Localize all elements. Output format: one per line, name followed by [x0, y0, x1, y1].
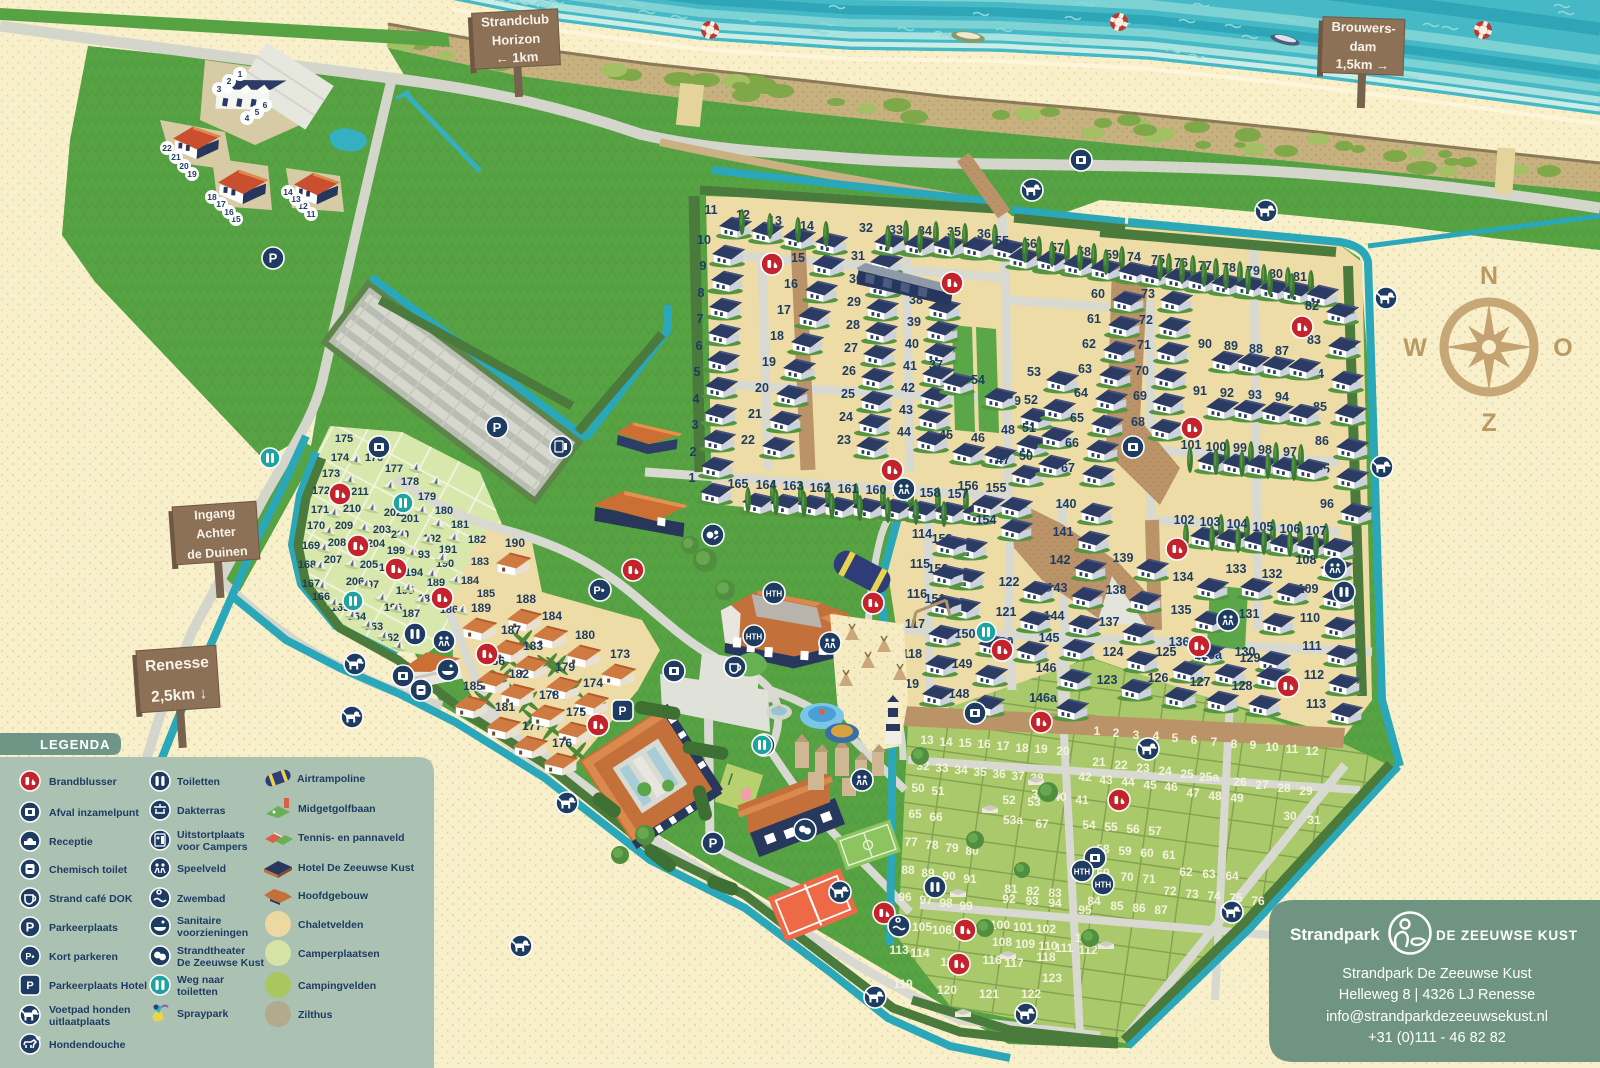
svg-text:43: 43	[1099, 773, 1113, 787]
svg-text:99: 99	[1233, 441, 1247, 455]
svg-text:14: 14	[939, 735, 953, 749]
svg-text:82: 82	[1026, 884, 1040, 898]
svg-text:36: 36	[977, 227, 991, 241]
svg-text:71: 71	[1137, 338, 1151, 352]
svg-text:Zilthus: Zilthus	[298, 1009, 333, 1021]
svg-text:5: 5	[1172, 731, 1179, 745]
svg-text:Horizon: Horizon	[491, 31, 540, 49]
svg-text:P: P	[269, 251, 278, 266]
svg-text:21: 21	[171, 152, 181, 162]
svg-text:Parkeerplaats: Parkeerplaats	[49, 922, 118, 934]
svg-text:74: 74	[1207, 889, 1221, 903]
svg-text:53: 53	[1027, 365, 1041, 379]
svg-text:122: 122	[999, 575, 1020, 589]
svg-text:112: 112	[1304, 668, 1324, 682]
svg-text:114: 114	[910, 946, 930, 960]
svg-text:135: 135	[1171, 603, 1192, 617]
svg-text:29: 29	[847, 295, 861, 309]
svg-text:207: 207	[324, 554, 342, 566]
svg-text:48: 48	[1001, 423, 1015, 437]
svg-text:22: 22	[741, 433, 755, 447]
svg-text:4: 4	[693, 392, 700, 406]
svg-text:86: 86	[1132, 901, 1146, 915]
svg-text:+31 (0)111 - 46 82 82: +31 (0)111 - 46 82 82	[1368, 1030, 1506, 1046]
svg-text:57: 57	[1148, 824, 1162, 838]
svg-text:182: 182	[509, 667, 529, 681]
svg-text:Camperplaatsen: Camperplaatsen	[298, 948, 380, 960]
svg-text:205: 205	[360, 559, 378, 571]
svg-text:3: 3	[217, 84, 222, 94]
svg-text:108: 108	[992, 935, 1012, 949]
svg-text:123: 123	[1097, 673, 1118, 687]
svg-text:190: 190	[505, 536, 525, 550]
svg-text:25: 25	[841, 387, 855, 401]
svg-text:41: 41	[1075, 793, 1089, 807]
svg-text:154: 154	[976, 513, 997, 527]
svg-text:40: 40	[905, 337, 919, 351]
svg-text:55: 55	[995, 234, 1009, 248]
svg-text:18: 18	[770, 329, 784, 343]
svg-text:70: 70	[1135, 364, 1149, 378]
svg-text:5: 5	[255, 107, 260, 117]
svg-text:65: 65	[908, 807, 922, 821]
svg-text:19: 19	[762, 355, 776, 369]
svg-text:36: 36	[992, 767, 1006, 781]
svg-text:187: 187	[501, 623, 521, 637]
svg-text:166: 166	[312, 591, 330, 603]
svg-text:14: 14	[800, 219, 814, 233]
svg-text:33: 33	[935, 761, 949, 775]
svg-text:173: 173	[610, 647, 630, 661]
svg-text:Helleweg 8 | 4326 LJ Renesse: Helleweg 8 | 4326 LJ Renesse	[1339, 987, 1535, 1003]
svg-text:← 1km: ← 1km	[495, 49, 538, 66]
svg-text:59: 59	[1118, 844, 1132, 858]
svg-text:176: 176	[552, 736, 572, 750]
svg-text:Midgetgolfbaan: Midgetgolfbaan	[298, 803, 376, 815]
svg-text:26: 26	[842, 364, 856, 378]
svg-text:1: 1	[238, 69, 243, 79]
svg-text:110: 110	[1300, 611, 1320, 625]
svg-text:Brandblusser: Brandblusser	[49, 776, 117, 788]
svg-text:178: 178	[401, 476, 419, 488]
svg-text:45: 45	[939, 428, 953, 442]
svg-text:Hoofdgebouw: Hoofdgebouw	[298, 890, 369, 902]
svg-text:LEGENDA: LEGENDA	[40, 737, 111, 752]
svg-text:DE ZEEUWSE KUST: DE ZEEUWSE KUST	[1436, 928, 1578, 943]
svg-text:P: P	[709, 836, 718, 851]
svg-text:94: 94	[1275, 390, 1289, 404]
svg-text:26: 26	[1233, 775, 1247, 789]
svg-text:7: 7	[697, 312, 704, 326]
svg-text:118: 118	[1036, 950, 1056, 964]
svg-text:23: 23	[837, 433, 851, 447]
svg-text:133: 133	[1226, 562, 1247, 576]
svg-text:18: 18	[207, 192, 217, 202]
svg-text:5: 5	[694, 365, 701, 379]
svg-text:64: 64	[1225, 869, 1239, 883]
svg-text:6: 6	[1191, 733, 1198, 747]
svg-text:87: 87	[1275, 344, 1289, 358]
svg-text:61: 61	[1162, 848, 1176, 862]
svg-text:HTH: HTH	[1074, 868, 1091, 877]
svg-text:1: 1	[1094, 724, 1101, 738]
svg-text:87: 87	[1154, 903, 1168, 917]
svg-text:47: 47	[996, 453, 1010, 467]
svg-text:179: 179	[418, 491, 436, 503]
svg-text:info@strandparkdezeeuwsekust.n: info@strandparkdezeeuwsekust.nl	[1326, 1009, 1548, 1025]
svg-text:15: 15	[791, 251, 805, 265]
svg-text:92: 92	[1220, 386, 1234, 400]
svg-text:139: 139	[1113, 551, 1134, 565]
svg-text:20: 20	[179, 161, 189, 171]
svg-text:1,5km →: 1,5km →	[1335, 56, 1389, 73]
svg-text:HTH: HTH	[1095, 881, 1112, 890]
svg-text:44: 44	[897, 425, 911, 439]
svg-text:174: 174	[331, 452, 350, 464]
svg-text:Strandpark De Zeeuwse Kust: Strandpark De Zeeuwse Kust	[1342, 966, 1531, 982]
svg-text:33: 33	[889, 223, 903, 237]
svg-text:77: 77	[904, 835, 918, 849]
svg-text:dam: dam	[1349, 39, 1376, 55]
svg-text:27: 27	[844, 341, 858, 355]
svg-text:16: 16	[784, 277, 798, 291]
svg-text:84: 84	[1087, 894, 1101, 908]
svg-text:15: 15	[958, 736, 972, 750]
svg-text:116: 116	[982, 953, 1002, 967]
svg-text:24: 24	[1158, 764, 1172, 778]
svg-text:P•: P•	[25, 952, 34, 962]
svg-text:175: 175	[335, 433, 353, 445]
svg-text:23: 23	[1136, 761, 1150, 775]
svg-text:109: 109	[1015, 937, 1035, 951]
svg-text:174: 174	[583, 676, 603, 690]
svg-text:101: 101	[1013, 920, 1033, 934]
svg-text:140: 140	[1056, 497, 1077, 511]
svg-text:8: 8	[698, 286, 705, 300]
svg-text:Strand café DOK: Strand café DOK	[49, 893, 133, 905]
svg-text:141: 141	[1053, 525, 1074, 539]
svg-text:29: 29	[1299, 784, 1313, 798]
svg-text:73: 73	[1141, 287, 1155, 301]
svg-text:90: 90	[1198, 337, 1212, 351]
svg-text:62: 62	[1082, 337, 1096, 351]
svg-text:Chaletvelden: Chaletvelden	[298, 919, 363, 931]
svg-text:102: 102	[1036, 922, 1056, 936]
svg-text:1: 1	[689, 471, 696, 485]
svg-text:3: 3	[692, 418, 699, 432]
svg-text:155: 155	[986, 481, 1007, 495]
svg-text:54: 54	[971, 373, 985, 387]
svg-text:32: 32	[859, 221, 873, 235]
svg-text:63: 63	[1202, 867, 1216, 881]
svg-text:66: 66	[929, 810, 943, 824]
svg-text:70: 70	[1120, 870, 1134, 884]
svg-text:Zwembad: Zwembad	[177, 893, 225, 905]
svg-text:116: 116	[907, 587, 927, 601]
svg-text:172: 172	[312, 485, 330, 497]
svg-text:uitlaatplaats: uitlaatplaats	[49, 1016, 110, 1028]
svg-text:9: 9	[700, 259, 707, 273]
svg-text:180: 180	[435, 505, 453, 517]
svg-text:185: 185	[463, 679, 483, 693]
svg-text:52: 52	[1024, 393, 1038, 407]
svg-text:149: 149	[952, 657, 973, 671]
svg-text:Airtrampoline: Airtrampoline	[297, 773, 365, 785]
svg-text:81: 81	[1004, 882, 1018, 896]
svg-text:99: 99	[959, 899, 973, 913]
svg-text:22: 22	[1114, 758, 1128, 772]
svg-text:Parkeerplaats Hotel: Parkeerplaats Hotel	[49, 980, 147, 992]
svg-text:142: 142	[1050, 553, 1071, 567]
svg-text:51: 51	[1022, 421, 1036, 435]
svg-text:124: 124	[1103, 645, 1124, 659]
svg-text:187: 187	[402, 608, 420, 620]
svg-text:7: 7	[1211, 735, 1218, 749]
svg-text:79: 79	[945, 841, 959, 855]
svg-text:114: 114	[912, 527, 932, 541]
svg-text:De Zeeuwse Kust: De Zeeuwse Kust	[177, 957, 264, 969]
svg-text:209: 209	[335, 520, 353, 532]
svg-text:120: 120	[937, 983, 957, 997]
svg-text:81: 81	[1293, 270, 1307, 284]
svg-text:122: 122	[1021, 987, 1041, 1001]
svg-text:HTH: HTH	[746, 633, 763, 642]
svg-text:72: 72	[1163, 884, 1177, 898]
svg-text:46: 46	[1164, 780, 1178, 794]
svg-text:188: 188	[516, 592, 536, 606]
svg-text:Kort parkeren: Kort parkeren	[49, 951, 118, 963]
svg-text:31: 31	[851, 249, 865, 263]
svg-text:85: 85	[1110, 899, 1124, 913]
svg-text:Z: Z	[1481, 409, 1496, 437]
svg-text:175: 175	[566, 705, 586, 719]
svg-text:56: 56	[1126, 822, 1140, 836]
svg-text:21: 21	[748, 407, 762, 421]
svg-text:10: 10	[1265, 740, 1279, 754]
svg-text:48: 48	[1208, 789, 1222, 803]
svg-text:171: 171	[311, 504, 329, 516]
svg-text:60: 60	[1140, 846, 1154, 860]
svg-text:123: 123	[1042, 971, 1062, 985]
svg-text:61: 61	[1087, 312, 1101, 326]
svg-text:Ingang: Ingang	[194, 506, 236, 523]
svg-text:88: 88	[1249, 342, 1263, 356]
svg-text:Hotel De Zeeuwse Kust: Hotel De Zeeuwse Kust	[298, 862, 415, 874]
svg-text:177: 177	[385, 463, 403, 475]
svg-text:67: 67	[1035, 817, 1049, 831]
svg-text:86: 86	[1315, 434, 1329, 448]
svg-text:111: 111	[1055, 941, 1074, 955]
svg-text:88: 88	[901, 863, 915, 877]
svg-text:105: 105	[912, 920, 932, 934]
svg-text:150: 150	[955, 627, 976, 641]
svg-text:74: 74	[1127, 250, 1141, 264]
svg-text:52: 52	[1002, 793, 1016, 807]
svg-text:132: 132	[1262, 567, 1283, 581]
svg-text:6: 6	[263, 100, 268, 110]
svg-text:2: 2	[1113, 726, 1120, 740]
svg-text:20: 20	[755, 381, 769, 395]
svg-text:102: 102	[1174, 513, 1195, 527]
svg-text:22: 22	[162, 143, 172, 153]
svg-text:129: 129	[1240, 651, 1261, 665]
svg-text:69: 69	[1133, 389, 1147, 403]
svg-text:121: 121	[979, 987, 999, 1001]
svg-text:98: 98	[1258, 443, 1272, 457]
svg-text:127: 127	[1190, 675, 1211, 689]
svg-text:13: 13	[920, 733, 934, 747]
svg-text:201: 201	[401, 513, 419, 525]
svg-text:137: 137	[1099, 615, 1120, 629]
svg-text:50: 50	[1019, 449, 1033, 463]
svg-text:20: 20	[1056, 744, 1070, 758]
svg-text:93: 93	[1248, 388, 1262, 402]
svg-text:103: 103	[1200, 515, 1221, 529]
svg-text:Receptie: Receptie	[49, 836, 93, 848]
svg-text:146: 146	[1036, 661, 1057, 675]
svg-text:66: 66	[1065, 436, 1079, 450]
svg-text:11: 11	[704, 203, 717, 217]
svg-text:Speelveld: Speelveld	[177, 863, 226, 875]
svg-text:146a: 146a	[1029, 691, 1058, 705]
svg-text:Afval inzamelpunt: Afval inzamelpunt	[49, 807, 139, 819]
svg-text:73: 73	[1185, 887, 1199, 901]
svg-text:89: 89	[1224, 339, 1238, 353]
svg-text:164: 164	[756, 478, 777, 492]
svg-text:162: 162	[810, 481, 831, 495]
svg-text:121: 121	[996, 605, 1017, 619]
svg-text:181: 181	[451, 519, 469, 531]
svg-text:25: 25	[1180, 767, 1194, 781]
svg-text:47: 47	[1186, 786, 1200, 800]
svg-text:113: 113	[889, 943, 909, 957]
svg-text:HTH: HTH	[766, 590, 783, 599]
svg-text:Weg naar: Weg naar	[177, 974, 224, 986]
svg-text:6: 6	[696, 339, 703, 353]
svg-text:24: 24	[839, 410, 853, 424]
svg-text:Hondendouche: Hondendouche	[49, 1039, 126, 1051]
svg-text:161: 161	[838, 482, 859, 496]
svg-text:208: 208	[328, 537, 346, 549]
svg-text:28: 28	[1277, 781, 1291, 795]
svg-text:34: 34	[954, 763, 968, 777]
svg-text:184: 184	[542, 609, 562, 623]
svg-text:P: P	[26, 920, 35, 935]
svg-text:16: 16	[977, 737, 991, 751]
svg-text:P: P	[493, 420, 502, 435]
svg-text:128: 128	[1232, 679, 1253, 693]
svg-text:Dakterras: Dakterras	[177, 805, 226, 817]
svg-text:83: 83	[1048, 886, 1062, 900]
svg-text:181: 181	[495, 700, 515, 714]
svg-text:134: 134	[1173, 570, 1194, 584]
svg-text:165: 165	[728, 477, 749, 491]
svg-text:72: 72	[1139, 313, 1153, 327]
svg-text:39: 39	[907, 315, 921, 329]
svg-text:179: 179	[555, 660, 575, 674]
svg-text:51: 51	[931, 784, 945, 798]
svg-text:145: 145	[1039, 631, 1060, 645]
svg-text:P•: P•	[593, 585, 604, 597]
svg-text:67: 67	[1061, 461, 1075, 475]
svg-text:204: 204	[367, 538, 386, 550]
svg-text:64: 64	[1074, 386, 1088, 400]
svg-text:35: 35	[973, 765, 987, 779]
svg-text:119: 119	[893, 977, 913, 991]
svg-text:17: 17	[777, 303, 791, 317]
svg-text:55: 55	[1104, 820, 1118, 834]
svg-text:91: 91	[1193, 384, 1207, 398]
svg-text:106: 106	[932, 923, 952, 937]
svg-text:46: 46	[971, 431, 985, 445]
svg-text:71: 71	[1142, 872, 1156, 886]
svg-text:50: 50	[911, 781, 925, 795]
svg-text:76: 76	[1251, 894, 1265, 908]
svg-text:Spraypark: Spraypark	[177, 1008, 229, 1020]
svg-text:49: 49	[1230, 791, 1244, 805]
svg-text:8: 8	[1231, 737, 1238, 751]
svg-text:108: 108	[1296, 553, 1317, 567]
svg-text:178: 178	[539, 688, 559, 702]
svg-text:98: 98	[939, 896, 953, 910]
svg-text:170: 170	[307, 520, 325, 532]
svg-text:42: 42	[901, 381, 915, 395]
svg-text:2: 2	[227, 76, 232, 86]
svg-text:14: 14	[283, 187, 293, 197]
svg-text:9: 9	[1250, 738, 1257, 752]
svg-text:189: 189	[471, 601, 491, 615]
svg-text:199: 199	[387, 545, 405, 557]
svg-text:210: 210	[343, 503, 361, 515]
svg-text:Toiletten: Toiletten	[177, 776, 220, 788]
svg-text:68: 68	[1131, 415, 1145, 429]
svg-text:54: 54	[1082, 818, 1096, 832]
svg-text:12: 12	[1305, 744, 1319, 758]
svg-text:60: 60	[1091, 287, 1105, 301]
svg-text:111: 111	[1302, 639, 1322, 653]
svg-text:27: 27	[1255, 778, 1269, 792]
svg-text:voorzieningen: voorzieningen	[177, 927, 248, 939]
svg-text:183: 183	[471, 556, 489, 568]
svg-text:2: 2	[690, 445, 697, 459]
svg-text:Achter: Achter	[196, 525, 237, 542]
svg-text:91: 91	[963, 872, 977, 886]
svg-text:44: 44	[1121, 775, 1135, 789]
svg-text:37: 37	[1011, 769, 1025, 783]
svg-text:21: 21	[1092, 755, 1106, 769]
svg-text:voor Campers: voor Campers	[177, 841, 248, 853]
svg-text:65: 65	[1070, 411, 1084, 425]
svg-text:96: 96	[898, 890, 912, 904]
svg-text:113: 113	[1306, 697, 1326, 711]
svg-text:11: 11	[1286, 742, 1299, 756]
svg-text:10: 10	[697, 233, 711, 247]
svg-text:163: 163	[783, 479, 804, 493]
svg-text:203: 203	[373, 524, 391, 536]
svg-text:toiletten: toiletten	[177, 986, 218, 998]
svg-text:Campingvelden: Campingvelden	[298, 980, 376, 992]
svg-text:53a: 53a	[1003, 813, 1023, 827]
svg-text:125: 125	[1156, 645, 1177, 659]
svg-text:45: 45	[1143, 778, 1157, 792]
svg-text:180: 180	[575, 628, 595, 642]
svg-text:28: 28	[846, 318, 860, 332]
svg-text:148: 148	[949, 687, 970, 701]
svg-text:17: 17	[996, 739, 1010, 753]
svg-text:182: 182	[468, 534, 486, 546]
svg-text:131: 131	[1239, 607, 1260, 621]
svg-text:Strandpark: Strandpark	[1290, 925, 1380, 944]
